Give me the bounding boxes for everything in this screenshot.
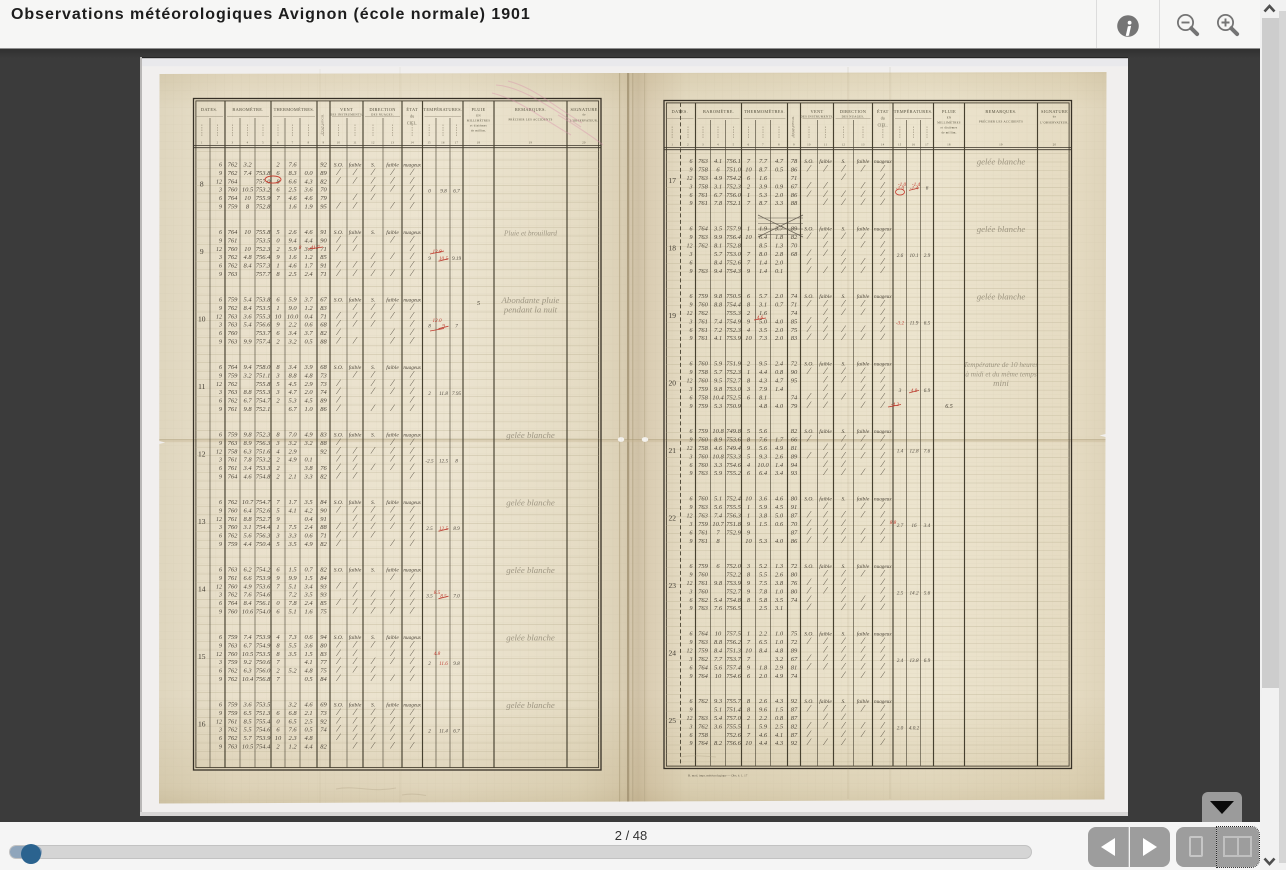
svg-text:89: 89 bbox=[320, 398, 327, 405]
svg-text:5.8: 5.8 bbox=[759, 597, 768, 604]
svg-text:93: 93 bbox=[320, 592, 327, 599]
svg-text:4.8: 4.8 bbox=[304, 372, 313, 379]
svg-text:9.8: 9.8 bbox=[440, 189, 447, 195]
svg-text:3.6: 3.6 bbox=[242, 701, 252, 708]
svg-text:10: 10 bbox=[745, 335, 752, 342]
svg-text:761: 761 bbox=[698, 192, 708, 199]
svg-text:3.4: 3.4 bbox=[287, 330, 297, 337]
svg-text:VENT: VENT bbox=[340, 107, 353, 112]
svg-text:3: 3 bbox=[689, 387, 693, 393]
svg-text:20: 20 bbox=[1053, 144, 1057, 147]
svg-text:759: 759 bbox=[228, 372, 239, 379]
svg-text:9.9: 9.9 bbox=[714, 234, 723, 241]
svg-text:Pluie et brouillard: Pluie et brouillard bbox=[503, 229, 557, 237]
svg-text:1: 1 bbox=[747, 369, 750, 376]
svg-text:10: 10 bbox=[715, 631, 722, 638]
svg-text:PRÉCISER LES ACCIDENTS: PRÉCISER LES ACCIDENTS bbox=[979, 119, 1023, 124]
svg-text:762: 762 bbox=[228, 735, 239, 742]
svg-text:1.3: 1.3 bbox=[775, 563, 784, 570]
svg-text:4.6: 4.6 bbox=[304, 195, 313, 202]
svg-text:9: 9 bbox=[690, 235, 693, 241]
svg-text:90: 90 bbox=[320, 237, 327, 244]
svg-text:4.7: 4.7 bbox=[775, 378, 784, 385]
svg-text:758: 758 bbox=[698, 183, 709, 190]
svg-text:12.8: 12.8 bbox=[909, 448, 918, 454]
svg-text:1.5: 1.5 bbox=[288, 566, 297, 573]
svg-text:68: 68 bbox=[791, 251, 798, 258]
svg-text:6.4: 6.4 bbox=[243, 507, 252, 514]
svg-text:6: 6 bbox=[690, 699, 693, 705]
svg-text:2.5: 2.5 bbox=[897, 590, 904, 596]
svg-text:8: 8 bbox=[308, 142, 310, 145]
svg-text:3.5: 3.5 bbox=[303, 499, 313, 506]
svg-text:S.: S. bbox=[371, 432, 375, 438]
svg-text:757.4: 757.4 bbox=[256, 339, 271, 346]
svg-text:5.9: 5.9 bbox=[759, 504, 768, 511]
svg-text:3: 3 bbox=[218, 593, 222, 599]
svg-text:72: 72 bbox=[791, 563, 798, 570]
svg-text:11.8: 11.8 bbox=[439, 391, 448, 397]
svg-text:7.6: 7.6 bbox=[714, 605, 723, 612]
svg-text:2.4: 2.4 bbox=[897, 657, 904, 664]
svg-text:5.5: 5.5 bbox=[288, 642, 297, 649]
svg-text:8.8: 8.8 bbox=[714, 302, 723, 309]
svg-text:25: 25 bbox=[668, 716, 676, 725]
svg-text:2.5: 2.5 bbox=[426, 526, 433, 532]
svg-text:10.8: 10.8 bbox=[712, 453, 724, 460]
svg-text:87: 87 bbox=[791, 707, 798, 714]
svg-text:757.5: 757.5 bbox=[726, 631, 741, 638]
svg-text:758: 758 bbox=[698, 167, 709, 174]
svg-text:4.6: 4.6 bbox=[714, 445, 723, 452]
svg-text:84: 84 bbox=[320, 676, 327, 683]
svg-text:4.1: 4.1 bbox=[288, 507, 296, 514]
svg-text:82: 82 bbox=[320, 330, 327, 337]
svg-text:17: 17 bbox=[455, 142, 459, 145]
svg-text:6.6: 6.6 bbox=[288, 178, 297, 185]
svg-text:68: 68 bbox=[320, 322, 327, 329]
svg-text:761: 761 bbox=[698, 529, 708, 536]
svg-text:0.4: 0.4 bbox=[304, 313, 313, 320]
svg-text:mini: mini bbox=[993, 378, 1009, 388]
svg-text:754.9: 754.9 bbox=[726, 318, 741, 325]
svg-text:752.6: 752.6 bbox=[726, 732, 741, 739]
svg-text:3.4: 3.4 bbox=[924, 522, 931, 529]
svg-text:9: 9 bbox=[690, 708, 693, 714]
svg-text:763: 763 bbox=[698, 158, 709, 165]
svg-text:4.9: 4.9 bbox=[714, 175, 723, 182]
svg-text:6: 6 bbox=[690, 362, 693, 368]
svg-text:5.4: 5.4 bbox=[243, 322, 252, 329]
svg-text:3.6: 3.6 bbox=[242, 313, 252, 320]
svg-text:15: 15 bbox=[198, 652, 206, 661]
svg-text:3: 3 bbox=[218, 390, 222, 396]
svg-text:756.6: 756.6 bbox=[726, 740, 741, 747]
svg-text:2: 2 bbox=[428, 391, 431, 397]
svg-text:gelée blanche: gelée blanche bbox=[977, 157, 1026, 167]
svg-text:760: 760 bbox=[698, 572, 709, 579]
svg-text:9.9: 9.9 bbox=[288, 575, 297, 582]
svg-text:755.5: 755.5 bbox=[726, 723, 741, 730]
svg-text:751.9: 751.9 bbox=[726, 361, 741, 368]
svg-text:6.3: 6.3 bbox=[243, 448, 252, 455]
svg-text:7.3: 7.3 bbox=[288, 634, 297, 641]
svg-text:754.4: 754.4 bbox=[256, 744, 271, 751]
svg-text:9: 9 bbox=[219, 576, 222, 582]
svg-text:6: 6 bbox=[690, 530, 693, 536]
svg-text:10: 10 bbox=[244, 246, 251, 253]
svg-text:8.3: 8.3 bbox=[288, 170, 297, 177]
svg-text:9: 9 bbox=[219, 745, 222, 751]
svg-text:10.7: 10.7 bbox=[242, 499, 254, 506]
svg-text:754.8: 754.8 bbox=[726, 597, 741, 604]
svg-text:19: 19 bbox=[529, 142, 533, 145]
svg-text:70: 70 bbox=[791, 521, 798, 528]
svg-text:2.8: 2.8 bbox=[775, 251, 784, 258]
svg-text:2.4: 2.4 bbox=[775, 361, 784, 368]
svg-text:12: 12 bbox=[687, 581, 693, 587]
svg-text:9: 9 bbox=[690, 269, 693, 275]
svg-text:3.2: 3.2 bbox=[287, 701, 297, 708]
svg-text:5.6: 5.6 bbox=[759, 445, 768, 452]
svg-text:de millim.: de millim. bbox=[941, 131, 956, 135]
svg-text:6: 6 bbox=[219, 669, 222, 675]
svg-text:20: 20 bbox=[582, 142, 586, 145]
svg-text:13.8: 13.8 bbox=[909, 658, 918, 664]
svg-text:0.5: 0.5 bbox=[304, 676, 313, 683]
svg-text:3.5: 3.5 bbox=[426, 594, 433, 600]
svg-text:758: 758 bbox=[698, 445, 709, 452]
svg-text:7.8: 7.8 bbox=[714, 200, 723, 207]
svg-text:2.5: 2.5 bbox=[759, 605, 768, 612]
svg-text:757.7: 757.7 bbox=[256, 271, 271, 278]
svg-text:762: 762 bbox=[228, 727, 239, 734]
svg-text:S.: S. bbox=[371, 230, 375, 236]
svg-text:760: 760 bbox=[698, 462, 709, 469]
svg-text:755.2: 755.2 bbox=[726, 470, 741, 477]
svg-text:10: 10 bbox=[275, 735, 282, 742]
svg-text:3: 3 bbox=[689, 657, 693, 663]
svg-text:752.3: 752.3 bbox=[256, 431, 271, 438]
svg-text:1.6: 1.6 bbox=[288, 204, 297, 211]
svg-text:0.5: 0.5 bbox=[304, 727, 313, 734]
svg-text:95: 95 bbox=[791, 378, 798, 385]
svg-text:4.8: 4.8 bbox=[759, 403, 768, 410]
svg-text:TEMPÉRATURES.: TEMPÉRATURES. bbox=[894, 109, 933, 114]
svg-text:753.9: 753.9 bbox=[256, 735, 271, 742]
svg-text:763: 763 bbox=[228, 440, 239, 447]
svg-text:9: 9 bbox=[690, 640, 693, 646]
svg-text:12: 12 bbox=[687, 176, 693, 182]
svg-text:16: 16 bbox=[441, 142, 445, 145]
svg-text:2.6: 2.6 bbox=[775, 572, 784, 579]
svg-text:6.7: 6.7 bbox=[453, 189, 460, 195]
svg-text:8: 8 bbox=[428, 324, 431, 330]
svg-text:84: 84 bbox=[320, 575, 327, 582]
svg-text:EN: EN bbox=[476, 114, 481, 118]
svg-text:6.5: 6.5 bbox=[243, 710, 252, 717]
svg-text:82: 82 bbox=[320, 178, 327, 185]
svg-text:758: 758 bbox=[698, 369, 709, 376]
svg-text:20: 20 bbox=[668, 379, 676, 388]
svg-text:752.9: 752.9 bbox=[726, 529, 741, 536]
svg-text:5.4: 5.4 bbox=[714, 597, 723, 604]
svg-text:762: 762 bbox=[228, 381, 239, 388]
svg-text:3: 3 bbox=[689, 184, 693, 190]
svg-text:17: 17 bbox=[925, 144, 929, 147]
svg-text:75: 75 bbox=[791, 327, 798, 334]
svg-text:0.1: 0.1 bbox=[775, 268, 783, 275]
svg-text:2.1: 2.1 bbox=[304, 710, 312, 717]
svg-text:73: 73 bbox=[320, 710, 327, 717]
svg-text:8.4: 8.4 bbox=[714, 259, 723, 266]
svg-text:-4.2: -4.2 bbox=[891, 401, 900, 408]
svg-text:9.9: 9.9 bbox=[243, 339, 252, 346]
svg-text:2.0: 2.0 bbox=[759, 673, 768, 680]
svg-text:5.5: 5.5 bbox=[243, 727, 252, 734]
svg-text:ÉTAT: ÉTAT bbox=[877, 109, 889, 114]
svg-text:73: 73 bbox=[320, 372, 327, 379]
svg-text:83: 83 bbox=[320, 305, 327, 312]
svg-text:6.7: 6.7 bbox=[243, 642, 252, 649]
svg-text:3.3: 3.3 bbox=[774, 200, 784, 207]
svg-text:9.4: 9.4 bbox=[714, 268, 723, 275]
svg-text:82: 82 bbox=[791, 723, 798, 730]
svg-text:2.2: 2.2 bbox=[759, 715, 768, 722]
svg-text:5.1: 5.1 bbox=[714, 707, 722, 714]
svg-text:1: 1 bbox=[747, 226, 750, 233]
svg-text:756.1: 756.1 bbox=[256, 600, 271, 607]
svg-text:SIGNATURE: SIGNATURE bbox=[570, 107, 597, 112]
svg-text:gelée blanche: gelée blanche bbox=[506, 632, 555, 642]
svg-text:7.6: 7.6 bbox=[288, 727, 297, 734]
svg-text:17: 17 bbox=[668, 176, 676, 185]
svg-text:9.2: 9.2 bbox=[243, 659, 252, 666]
svg-text:10: 10 bbox=[745, 538, 752, 545]
svg-text:9.8: 9.8 bbox=[714, 293, 723, 300]
svg-text:2.0: 2.0 bbox=[304, 389, 313, 396]
svg-text:760: 760 bbox=[698, 302, 709, 309]
svg-text:0.9: 0.9 bbox=[775, 183, 784, 190]
svg-text:0.7: 0.7 bbox=[304, 566, 313, 573]
svg-text:760: 760 bbox=[698, 496, 709, 503]
svg-text:6.7: 6.7 bbox=[288, 406, 297, 413]
svg-text:757.0: 757.0 bbox=[256, 178, 271, 185]
svg-text:3.1: 3.1 bbox=[713, 183, 722, 190]
svg-text:12.0: 12.0 bbox=[432, 318, 441, 324]
svg-text:6: 6 bbox=[219, 601, 222, 607]
svg-text:754.3: 754.3 bbox=[726, 268, 741, 275]
svg-text:10: 10 bbox=[807, 144, 811, 147]
svg-text:1: 1 bbox=[747, 513, 750, 520]
svg-text:6: 6 bbox=[219, 432, 222, 438]
svg-text:3.4: 3.4 bbox=[287, 364, 297, 371]
svg-text:93: 93 bbox=[320, 583, 327, 590]
svg-text:762: 762 bbox=[228, 170, 239, 177]
svg-text:763: 763 bbox=[698, 470, 709, 477]
svg-text:4.0: 4.0 bbox=[775, 403, 784, 410]
svg-text:86: 86 bbox=[320, 406, 327, 413]
svg-text:68: 68 bbox=[320, 364, 327, 371]
svg-text:DES INSTRUMENTS.: DES INSTRUMENTS. bbox=[801, 115, 834, 119]
svg-text:4.4: 4.4 bbox=[304, 237, 313, 244]
svg-text:5.6: 5.6 bbox=[714, 664, 723, 671]
svg-text:4.3: 4.3 bbox=[759, 378, 768, 385]
svg-text:9: 9 bbox=[690, 336, 693, 342]
svg-text:12: 12 bbox=[687, 716, 693, 722]
svg-text:DIRECTION: DIRECTION bbox=[840, 109, 867, 114]
svg-text:2.0: 2.0 bbox=[775, 335, 784, 342]
svg-text:752.3: 752.3 bbox=[256, 246, 271, 253]
svg-text:8.9: 8.9 bbox=[714, 437, 723, 444]
svg-text:2: 2 bbox=[428, 729, 431, 735]
svg-text:757.3: 757.3 bbox=[256, 263, 271, 270]
svg-text:763: 763 bbox=[228, 566, 239, 573]
svg-text:755.5: 755.5 bbox=[726, 504, 741, 511]
svg-text:66: 66 bbox=[791, 437, 798, 444]
svg-text:9: 9 bbox=[690, 404, 693, 410]
svg-text:9: 9 bbox=[219, 171, 222, 177]
svg-text:2: 2 bbox=[217, 142, 219, 145]
svg-text:1.4: 1.4 bbox=[775, 386, 784, 393]
svg-text:3.6: 3.6 bbox=[713, 723, 723, 730]
svg-text:9.6: 9.6 bbox=[759, 707, 768, 714]
svg-text:750.5: 750.5 bbox=[726, 293, 741, 300]
svg-text:751.6: 751.6 bbox=[256, 448, 271, 455]
svg-text:81: 81 bbox=[791, 664, 798, 671]
svg-text:9: 9 bbox=[219, 711, 222, 717]
svg-text:8.9: 8.9 bbox=[243, 440, 252, 447]
svg-text:2.4: 2.4 bbox=[304, 271, 313, 278]
svg-text:70: 70 bbox=[320, 187, 327, 194]
svg-text:755.3: 755.3 bbox=[726, 310, 741, 317]
svg-text:12: 12 bbox=[198, 449, 206, 458]
svg-text:764: 764 bbox=[228, 195, 239, 202]
svg-text:6.8: 6.8 bbox=[288, 710, 297, 717]
svg-text:9: 9 bbox=[690, 674, 693, 680]
svg-text:10: 10 bbox=[745, 496, 752, 503]
svg-text:6: 6 bbox=[690, 564, 693, 570]
svg-text:9: 9 bbox=[219, 643, 222, 649]
svg-text:754.2: 754.2 bbox=[726, 175, 741, 182]
svg-text:14.2: 14.2 bbox=[909, 589, 918, 596]
svg-text:2.9: 2.9 bbox=[288, 448, 297, 455]
svg-text:6.5: 6.5 bbox=[759, 639, 768, 646]
svg-text:754.2: 754.2 bbox=[256, 566, 271, 573]
svg-text:3.3: 3.3 bbox=[287, 533, 297, 540]
svg-text:760: 760 bbox=[228, 651, 239, 658]
svg-text:12: 12 bbox=[842, 144, 846, 147]
svg-text:6: 6 bbox=[219, 567, 222, 573]
svg-text:756.4: 756.4 bbox=[256, 254, 271, 261]
svg-text:2.2: 2.2 bbox=[759, 631, 768, 638]
svg-text:4.5: 4.5 bbox=[775, 504, 784, 511]
svg-text:4.1: 4.1 bbox=[775, 732, 783, 739]
svg-text:82: 82 bbox=[320, 566, 327, 573]
svg-text:754.8: 754.8 bbox=[256, 474, 271, 481]
svg-text:3: 3 bbox=[689, 724, 693, 730]
svg-text:5.9: 5.9 bbox=[288, 246, 297, 253]
svg-text:19: 19 bbox=[999, 144, 1003, 147]
svg-text:759: 759 bbox=[228, 659, 239, 666]
svg-text:88: 88 bbox=[320, 339, 327, 346]
svg-text:12: 12 bbox=[216, 719, 222, 725]
svg-text:6: 6 bbox=[219, 702, 222, 708]
svg-text:12: 12 bbox=[687, 446, 693, 452]
svg-text:5.6: 5.6 bbox=[243, 533, 252, 540]
svg-text:2.6: 2.6 bbox=[759, 698, 768, 705]
svg-text:5.1: 5.1 bbox=[288, 583, 296, 590]
svg-text:3.9: 3.9 bbox=[303, 364, 313, 371]
svg-text:757.4: 757.4 bbox=[726, 664, 741, 671]
svg-text:0.6: 0.6 bbox=[304, 322, 313, 329]
svg-text:752.5: 752.5 bbox=[726, 394, 741, 401]
svg-text:762: 762 bbox=[698, 597, 709, 604]
svg-text:3.5: 3.5 bbox=[758, 327, 768, 334]
svg-text:-1.4: -1.4 bbox=[912, 181, 921, 188]
svg-text:6.5: 6.5 bbox=[924, 320, 931, 326]
svg-text:3: 3 bbox=[218, 525, 222, 531]
svg-text:11: 11 bbox=[353, 142, 357, 145]
svg-text:9: 9 bbox=[793, 144, 795, 147]
svg-text:71: 71 bbox=[791, 302, 798, 309]
svg-text:3: 3 bbox=[899, 388, 902, 394]
svg-text:4.5: 4.5 bbox=[304, 398, 313, 405]
svg-text:751.3: 751.3 bbox=[726, 648, 741, 655]
svg-text:2.9: 2.9 bbox=[304, 381, 313, 388]
svg-text:4: 4 bbox=[717, 144, 719, 147]
svg-text:4.8: 4.8 bbox=[304, 668, 313, 675]
svg-text:10: 10 bbox=[198, 314, 206, 323]
svg-text:9.8: 9.8 bbox=[714, 386, 723, 393]
svg-text:85: 85 bbox=[791, 318, 798, 325]
svg-text:752.1: 752.1 bbox=[256, 406, 271, 413]
svg-text:759: 759 bbox=[698, 648, 709, 655]
svg-text:3.3: 3.3 bbox=[303, 474, 313, 481]
svg-text:0.0: 0.0 bbox=[304, 170, 313, 177]
svg-text:1.0: 1.0 bbox=[304, 406, 313, 413]
svg-text:22: 22 bbox=[668, 514, 676, 523]
svg-text:S.O.: S.O. bbox=[334, 365, 343, 371]
svg-text:762: 762 bbox=[698, 656, 709, 663]
svg-text:764: 764 bbox=[698, 226, 709, 233]
svg-text:14: 14 bbox=[881, 144, 885, 147]
svg-text:1.5: 1.5 bbox=[304, 651, 313, 658]
svg-text:756.3: 756.3 bbox=[256, 533, 271, 540]
svg-text:0.7: 0.7 bbox=[775, 302, 784, 309]
svg-text:18: 18 bbox=[947, 144, 951, 147]
svg-text:751.3: 751.3 bbox=[256, 710, 271, 717]
svg-text:8.8: 8.8 bbox=[288, 372, 297, 379]
svg-text:761: 761 bbox=[698, 335, 708, 342]
svg-text:89: 89 bbox=[791, 453, 798, 460]
svg-text:9: 9 bbox=[690, 168, 693, 174]
svg-text:10.8: 10.8 bbox=[712, 428, 724, 435]
svg-text:5.0: 5.0 bbox=[775, 513, 784, 520]
svg-text:et dixièmes: et dixièmes bbox=[940, 126, 958, 130]
svg-text:5.2: 5.2 bbox=[288, 668, 297, 675]
svg-text:5.4: 5.4 bbox=[243, 296, 252, 303]
svg-text:759: 759 bbox=[698, 386, 709, 393]
svg-text:87: 87 bbox=[791, 715, 798, 722]
svg-text:9: 9 bbox=[219, 475, 222, 481]
svg-text:2.2: 2.2 bbox=[288, 322, 297, 329]
svg-text:9.8: 9.8 bbox=[243, 406, 252, 413]
svg-text:4.8: 4.8 bbox=[434, 650, 441, 657]
svg-text:L’OBSERVATEUR.: L’OBSERVATEUR. bbox=[1040, 121, 1068, 125]
svg-text:9.19: 9.19 bbox=[452, 256, 461, 262]
svg-text:755.3: 755.3 bbox=[256, 389, 271, 396]
